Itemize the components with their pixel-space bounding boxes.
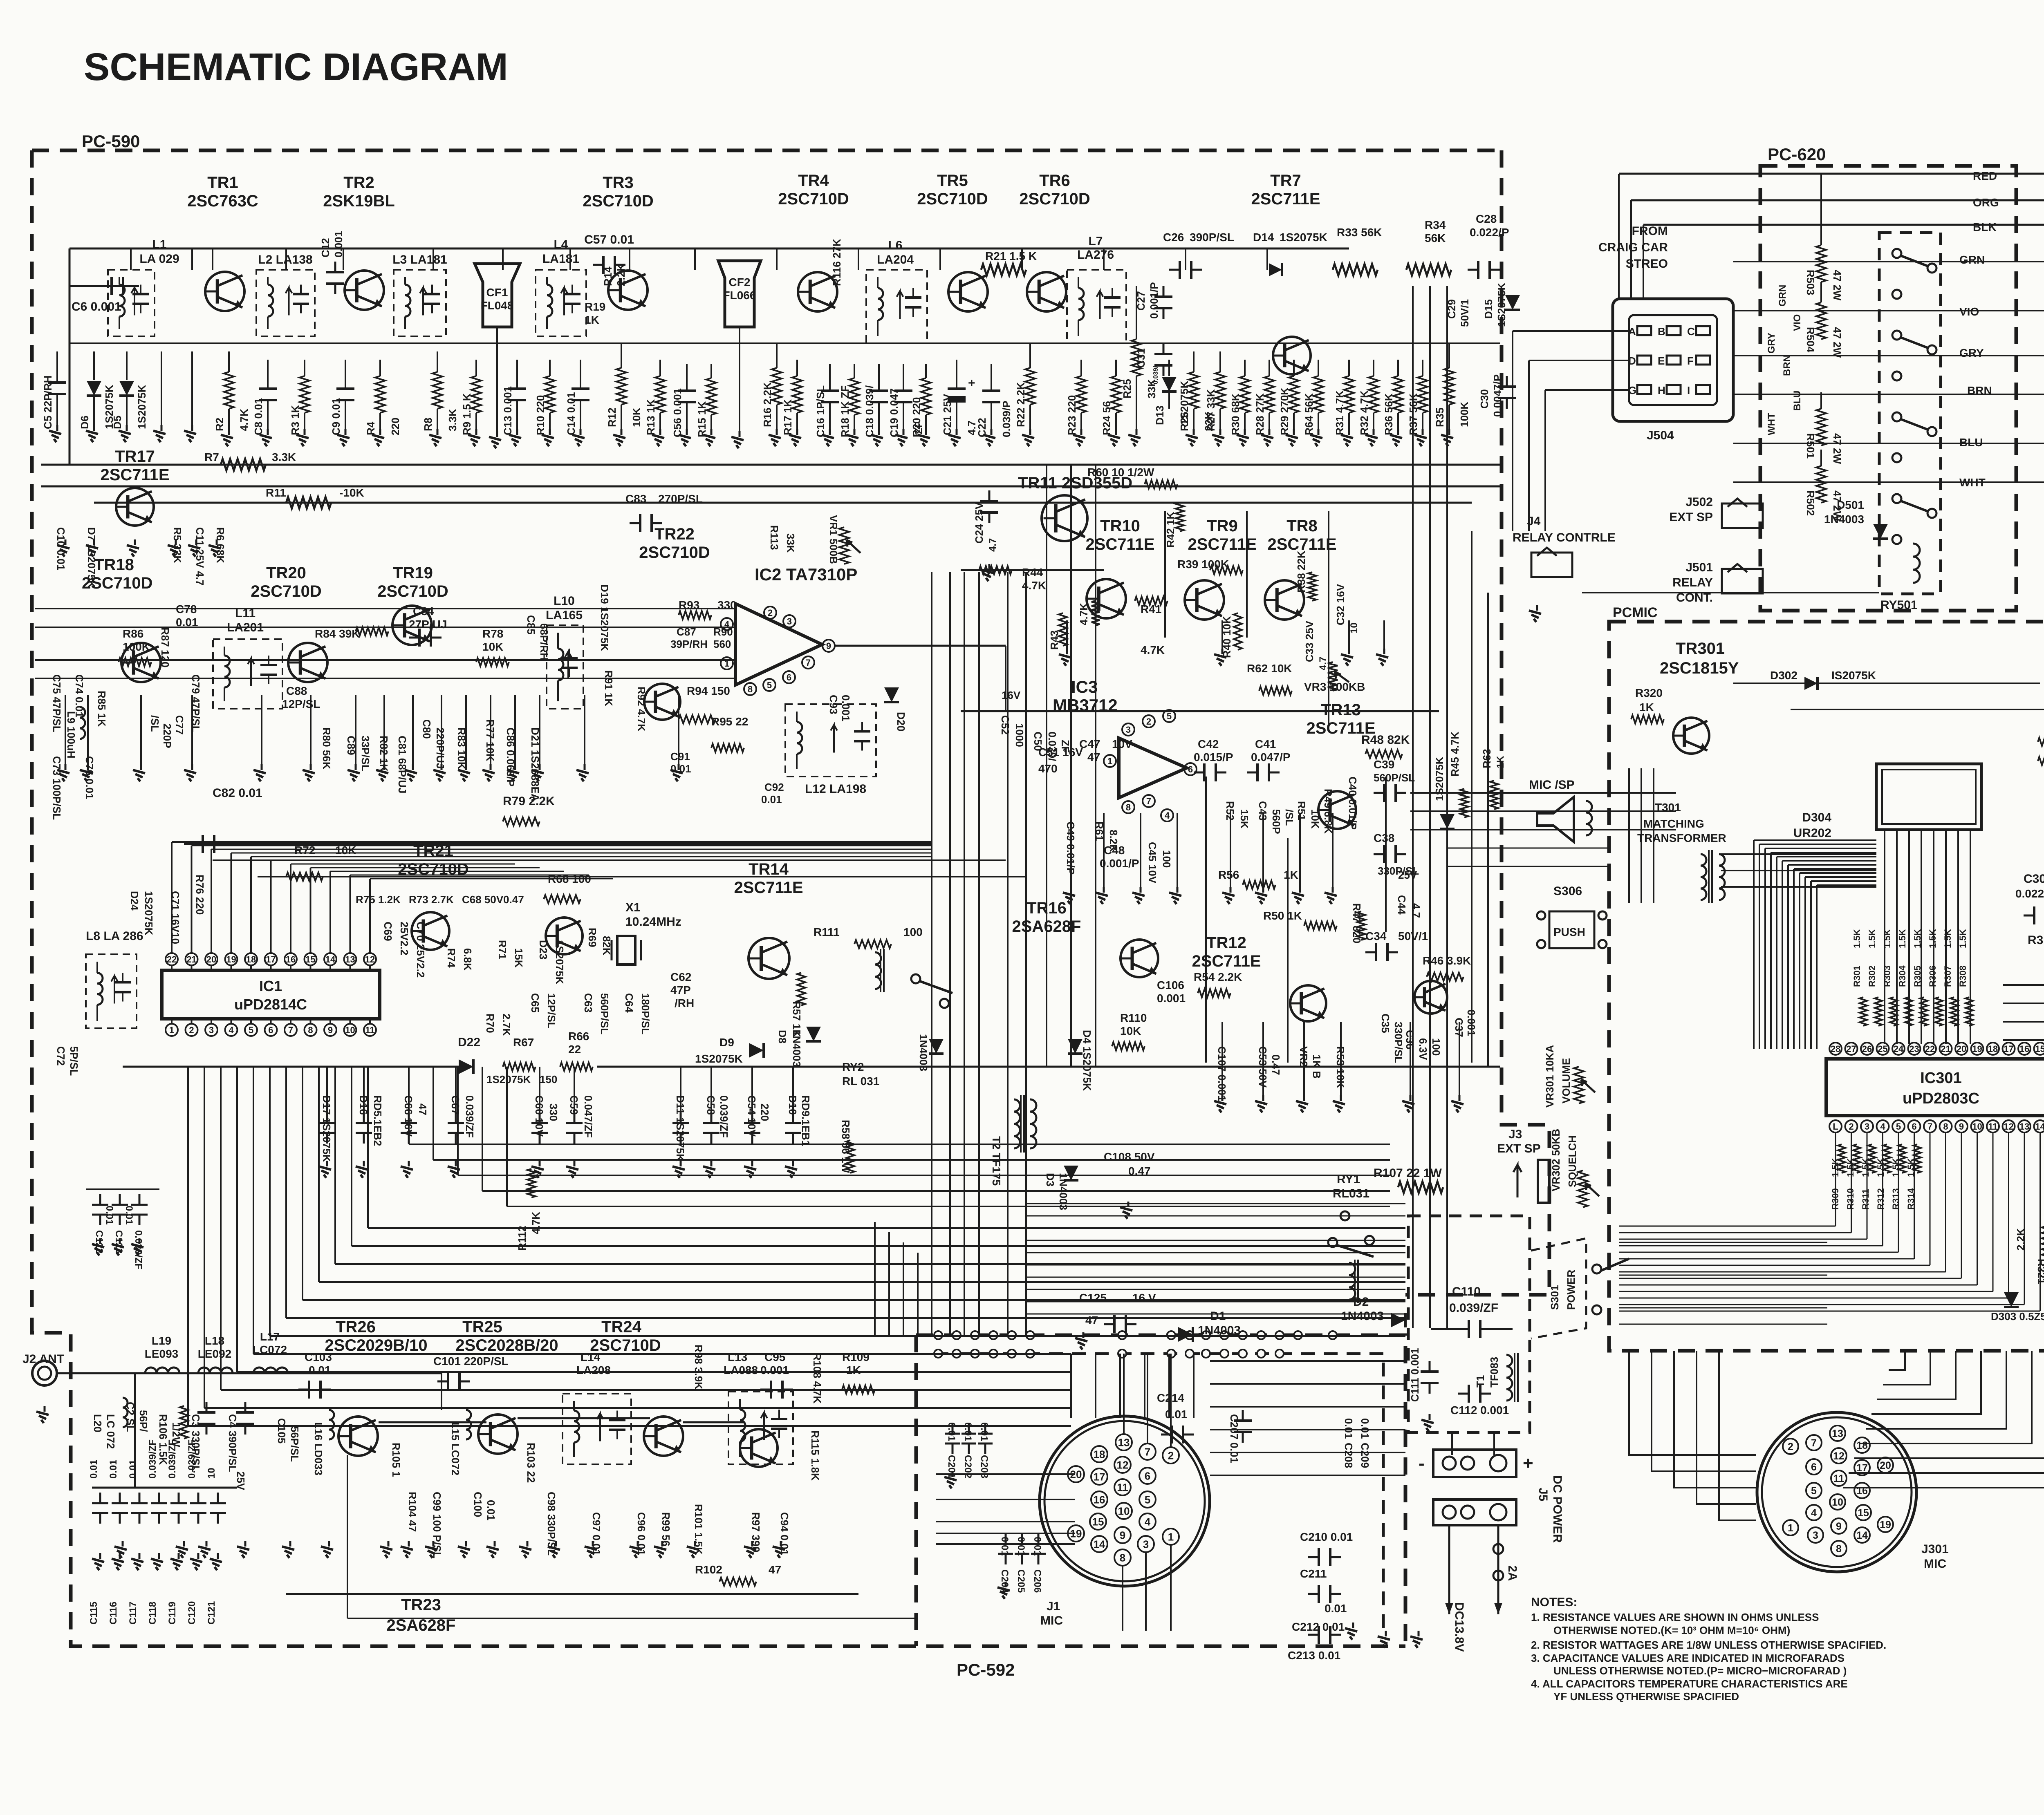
svg-text:C84: C84	[413, 605, 434, 618]
svg-text:RY501: RY501	[1880, 598, 1918, 612]
svg-text:IC1: IC1	[259, 978, 282, 994]
svg-text:12P/SL: 12P/SL	[545, 993, 558, 1029]
svg-text:TR26: TR26	[336, 1318, 376, 1336]
svg-text:17: 17	[266, 954, 276, 965]
svg-text:OTHERWISE NOTED.(K= 10³ OHM: OTHERWISE NOTED.(K= 10³ OHM M=10⁶ OHM)	[1553, 1624, 1790, 1636]
svg-text:R26: R26	[1178, 412, 1190, 431]
svg-text:CRAIG CAR: CRAIG CAR	[1598, 241, 1668, 254]
svg-text:X1: X1	[625, 901, 641, 914]
svg-text:9: 9	[1959, 1121, 1964, 1132]
svg-text:560: 560	[713, 638, 731, 650]
svg-text:1K: 1K	[846, 1364, 861, 1376]
svg-text:0.0047/P: 0.0047/P	[1491, 374, 1504, 417]
svg-text:6.8K: 6.8K	[462, 948, 474, 971]
svg-text:0.039/ZF: 0.039/ZF	[147, 1439, 158, 1479]
svg-text:15: 15	[1092, 1515, 1104, 1528]
svg-text:UR202: UR202	[1793, 826, 1831, 840]
svg-text:15: 15	[2035, 1044, 2044, 1054]
svg-text:YF UNLESS QTHERWISE SPACIFI: YF UNLESS QTHERWISE SPACIFIED	[1553, 1690, 1739, 1703]
svg-text:12: 12	[1833, 1450, 1845, 1462]
svg-text:R84 39K: R84 39K	[315, 627, 360, 640]
svg-text:12P/SL: 12P/SL	[282, 698, 320, 710]
svg-text:19: 19	[1880, 1519, 1891, 1531]
svg-text:R78: R78	[482, 627, 503, 640]
svg-text:1K B: 1K B	[1311, 1054, 1323, 1079]
svg-text:R56: R56	[1218, 868, 1239, 881]
svg-text:R19: R19	[585, 300, 605, 313]
svg-text:15: 15	[1858, 1507, 1869, 1519]
svg-text:0.01: 0.01	[485, 1500, 497, 1521]
svg-text:R85 1K: R85 1K	[96, 691, 108, 727]
svg-text:R45 4.7K: R45 4.7K	[1449, 732, 1461, 777]
svg-text:R315 1M: R315 1M	[2028, 933, 2044, 947]
svg-text:R69: R69	[586, 928, 598, 947]
svg-text:A: A	[1628, 325, 1636, 338]
svg-text:J5: J5	[1536, 1488, 1550, 1501]
svg-text:R25: R25	[1121, 379, 1133, 398]
svg-text:ORG: ORG	[1973, 196, 1999, 209]
svg-text:R503: R503	[1804, 270, 1817, 295]
svg-text:1S2075K: 1S2075K	[136, 385, 148, 429]
svg-text:4: 4	[1811, 1507, 1817, 1519]
svg-text:C209: C209	[1359, 1443, 1371, 1468]
svg-text:14: 14	[2035, 1121, 2044, 1132]
svg-text:D14: D14	[1253, 231, 1274, 244]
svg-text:56K: 56K	[1425, 232, 1446, 244]
svg-text:/SL: /SL	[1283, 809, 1295, 826]
svg-text:1N4003: 1N4003	[1824, 513, 1864, 526]
svg-text:TR2: TR2	[343, 174, 374, 192]
svg-text:18: 18	[1988, 1044, 1998, 1054]
svg-text:47 2W: 47 2W	[1831, 433, 1843, 464]
svg-text:C103: C103	[305, 1351, 332, 1363]
svg-text:J301: J301	[1921, 1542, 1949, 1556]
svg-text:L14: L14	[580, 1351, 601, 1363]
svg-text:27: 27	[1846, 1044, 1856, 1054]
svg-text:C108 50V: C108 50V	[1104, 1150, 1155, 1163]
svg-text:C47: C47	[1079, 738, 1100, 750]
svg-text:560P/SL: 560P/SL	[1374, 772, 1415, 784]
svg-text:PC-592: PC-592	[957, 1660, 1015, 1679]
svg-text:D8: D8	[776, 1030, 789, 1043]
svg-text:470: 470	[1038, 762, 1058, 775]
svg-text:TR17: TR17	[115, 448, 155, 465]
svg-text:1S2075K: 1S2075K	[554, 940, 566, 985]
svg-text:C71 16V10: C71 16V10	[169, 891, 182, 944]
svg-text:TR20: TR20	[266, 564, 306, 582]
svg-text:+: +	[968, 376, 975, 390]
svg-text:C16 1P/SL: C16 1P/SL	[814, 385, 827, 437]
svg-text:2SC2029B/10: 2SC2029B/10	[325, 1336, 427, 1354]
svg-text:C35: C35	[1379, 1014, 1392, 1033]
svg-text:1. RESISTANCE VALUES ARE S: 1. RESISTANCE VALUES ARE SHOWN IN OHMS U…	[1531, 1611, 1819, 1623]
svg-text:1S2075K: 1S2075K	[1433, 756, 1446, 801]
svg-text:0.015/P: 0.015/P	[1194, 751, 1233, 763]
svg-text:0.01: 0.01	[128, 1459, 139, 1479]
svg-text:68P/RH: 68P/RH	[538, 623, 550, 660]
svg-text:EXT SP: EXT SP	[1497, 1142, 1541, 1155]
svg-text:4.7K: 4.7K	[1022, 579, 1046, 592]
svg-text:PUSH: PUSH	[1553, 926, 1585, 938]
svg-text:C64: C64	[623, 993, 635, 1013]
svg-text:R72: R72	[294, 844, 315, 857]
svg-text:33K: 33K	[784, 533, 797, 553]
svg-text:C121: C121	[206, 1601, 217, 1625]
svg-text:R3 1K: R3 1K	[289, 405, 301, 435]
svg-text:6: 6	[787, 672, 791, 683]
svg-text:1S2075K: 1S2075K	[486, 1073, 531, 1085]
svg-text:2SC710D: 2SC710D	[82, 574, 152, 592]
svg-text:D6: D6	[78, 416, 91, 429]
svg-text:SCHEMATIC DIAGRAM: SCHEMATIC DIAGRAM	[84, 45, 508, 89]
svg-text:J1: J1	[1047, 1600, 1060, 1613]
svg-text:8: 8	[748, 684, 753, 694]
svg-text:R30 68K: R30 68K	[1229, 393, 1242, 435]
svg-text:R6 68K: R6 68K	[214, 527, 226, 563]
svg-text:15K: 15K	[1238, 809, 1251, 829]
svg-text:20: 20	[206, 954, 216, 965]
svg-text:R76 220: R76 220	[194, 875, 206, 915]
svg-text:11: 11	[1833, 1473, 1845, 1484]
svg-text:12: 12	[1117, 1459, 1129, 1471]
svg-text:2.7K: 2.7K	[500, 1014, 513, 1036]
svg-text:R302: R302	[1867, 965, 1877, 987]
svg-text:R36 56K: R36 56K	[1383, 393, 1395, 435]
svg-text:C214: C214	[1157, 1392, 1184, 1404]
svg-text:R108 4.7K: R108 4.7K	[811, 1353, 823, 1404]
svg-text:C63: C63	[582, 993, 594, 1013]
svg-text:5: 5	[1896, 1121, 1901, 1132]
svg-text:R113: R113	[768, 525, 780, 550]
svg-text:3: 3	[1143, 1538, 1149, 1550]
svg-text:L18: L18	[205, 1334, 224, 1347]
svg-text:D: D	[1628, 355, 1636, 367]
svg-text:D4 1S2075K: D4 1S2075K	[1081, 1030, 1093, 1091]
svg-text:C14 0.01: C14 0.01	[565, 392, 577, 435]
svg-text:R11: R11	[266, 486, 286, 499]
svg-text:R43: R43	[1048, 630, 1060, 650]
svg-text:13: 13	[345, 954, 355, 965]
svg-text:10K: 10K	[482, 640, 503, 653]
svg-text:10: 10	[1972, 1121, 1982, 1132]
svg-text:22: 22	[1925, 1044, 1935, 1054]
svg-text:GRY: GRY	[1959, 347, 1984, 359]
svg-text:10.24MHz: 10.24MHz	[625, 915, 681, 929]
svg-text:9: 9	[1836, 1521, 1842, 1532]
svg-text:1: 1	[1107, 756, 1112, 766]
svg-text:C75 47P/SL: C75 47P/SL	[51, 674, 63, 732]
svg-text:uPD2803C: uPD2803C	[1903, 1090, 1979, 1107]
svg-text:L12 LA198: L12 LA198	[805, 782, 866, 796]
svg-text:C82 0.01: C82 0.01	[213, 786, 262, 800]
svg-text:R20 220: R20 220	[910, 397, 923, 437]
svg-text:0.01: 0.01	[176, 616, 198, 629]
svg-text:18: 18	[246, 954, 256, 965]
svg-text:C100: C100	[472, 1492, 484, 1517]
svg-text:330: 330	[717, 599, 737, 611]
svg-text:C33 25V: C33 25V	[1303, 620, 1316, 662]
svg-text:220P/UJ: 220P/UJ	[434, 727, 446, 769]
svg-text:LA208: LA208	[576, 1364, 611, 1376]
svg-text:10K: 10K	[1120, 1025, 1141, 1037]
svg-text:1.5K: 1.5K	[1891, 1158, 1901, 1177]
svg-text:8: 8	[308, 1025, 313, 1035]
svg-text:R304: R304	[1897, 965, 1907, 987]
svg-text:C9 0.01: C9 0.01	[330, 398, 342, 435]
svg-text:R112: R112	[516, 1226, 528, 1251]
svg-text:8: 8	[1943, 1121, 1948, 1132]
svg-text:B: B	[1658, 325, 1665, 338]
svg-text:0.022/P: 0.022/P	[1470, 226, 1509, 239]
svg-text:3. CAPACITANCE VALUES ARE: 3. CAPACITANCE VALUES ARE INDICATED IN M…	[1531, 1652, 1845, 1664]
svg-text:R115 1.8K: R115 1.8K	[809, 1430, 821, 1481]
svg-text:220: 220	[759, 1103, 771, 1121]
svg-text:7: 7	[288, 1025, 293, 1035]
svg-text:RD5.1EB2: RD5.1EB2	[372, 1095, 384, 1146]
svg-text:LC072: LC072	[253, 1343, 287, 1356]
svg-text:G: G	[1628, 384, 1636, 396]
svg-text:C52: C52	[999, 715, 1011, 735]
svg-text:9: 9	[826, 641, 831, 651]
svg-text:3: 3	[209, 1025, 214, 1035]
svg-text:LE093: LE093	[145, 1347, 179, 1360]
svg-text:R110: R110	[1120, 1012, 1147, 1024]
svg-text:0.001: 0.001	[840, 695, 852, 721]
svg-text:9: 9	[328, 1025, 333, 1035]
svg-text:2: 2	[1168, 1449, 1174, 1461]
svg-text:25V2.2: 25V2.2	[398, 922, 410, 955]
svg-text:0.039/ZF: 0.039/ZF	[1449, 1301, 1498, 1315]
svg-text:100: 100	[1430, 1038, 1442, 1056]
svg-text:MIC /SP: MIC /SP	[1529, 778, 1575, 792]
svg-text:R67: R67	[513, 1036, 534, 1049]
svg-text:7: 7	[1811, 1437, 1817, 1449]
svg-text:VR1 500B: VR1 500B	[827, 515, 840, 564]
svg-text:1K: 1K	[1495, 756, 1506, 768]
svg-text:20: 20	[1880, 1460, 1891, 1471]
svg-text:TRANSFORMER: TRANSFORMER	[1637, 832, 1726, 844]
svg-text:C24 25V: C24 25V	[973, 502, 985, 544]
svg-text:6: 6	[1188, 764, 1193, 774]
svg-text:16: 16	[286, 954, 296, 965]
svg-text:TR14: TR14	[749, 860, 789, 878]
svg-text:R51: R51	[1295, 801, 1308, 821]
svg-text:22: 22	[568, 1043, 581, 1056]
svg-text:RELAY: RELAY	[1672, 576, 1713, 589]
svg-text:22: 22	[167, 954, 177, 965]
svg-text:S301: S301	[1549, 1285, 1561, 1310]
svg-text:C203: C203	[979, 1455, 990, 1478]
svg-text:BRN: BRN	[1782, 355, 1793, 376]
svg-text:47 2W: 47 2W	[1831, 490, 1843, 521]
svg-text:PC-620: PC-620	[1768, 145, 1826, 164]
svg-text:R66: R66	[568, 1030, 589, 1043]
svg-text:D24: D24	[128, 891, 141, 911]
svg-text:TR16: TR16	[1026, 899, 1067, 917]
svg-text:TR8: TR8	[1286, 517, 1318, 535]
svg-text:16: 16	[1094, 1493, 1105, 1506]
svg-text:14: 14	[1856, 1530, 1868, 1541]
svg-text:0.047/ZF: 0.047/ZF	[582, 1095, 594, 1138]
svg-text:L6: L6	[888, 239, 902, 252]
svg-text:C88: C88	[286, 685, 307, 697]
svg-text:15: 15	[305, 954, 315, 965]
svg-text:10: 10	[1118, 1505, 1130, 1517]
svg-text:1: 1	[1788, 1522, 1793, 1534]
svg-text:PC-590: PC-590	[82, 132, 140, 151]
svg-text:8: 8	[1120, 1551, 1125, 1564]
svg-text:R8: R8	[422, 418, 434, 431]
svg-text:TR9: TR9	[1207, 517, 1238, 535]
svg-text:3.3K: 3.3K	[272, 451, 296, 463]
svg-text:4.7K: 4.7K	[1078, 603, 1090, 625]
svg-text:C118: C118	[147, 1602, 158, 1625]
svg-text:SQUELCH: SQUELCH	[1566, 1135, 1578, 1187]
svg-text:28: 28	[1831, 1044, 1840, 1054]
svg-text:4.7K: 4.7K	[1141, 644, 1165, 656]
svg-text:L8 LA 286: L8 LA 286	[86, 929, 143, 943]
svg-text:1.5K: 1.5K	[1882, 929, 1892, 948]
svg-text:2SC710D: 2SC710D	[778, 190, 849, 208]
svg-text:4: 4	[1145, 1515, 1151, 1528]
svg-text:STREO: STREO	[1626, 257, 1668, 271]
svg-text:14: 14	[1094, 1538, 1105, 1550]
svg-text:R12: R12	[606, 407, 618, 427]
svg-text:C85: C85	[525, 615, 537, 635]
svg-text:C42: C42	[1198, 738, 1219, 750]
svg-text:C8 0.01: C8 0.01	[252, 398, 264, 435]
svg-text:R60 10 1/2W: R60 10 1/2W	[1087, 466, 1154, 479]
svg-text:1N4003: 1N4003	[1341, 1309, 1384, 1323]
svg-text:L: L	[1833, 1121, 1838, 1132]
svg-text:1.5K: 1.5K	[1927, 929, 1938, 948]
svg-text:330P/SL: 330P/SL	[1392, 1022, 1405, 1063]
svg-text:R320: R320	[1635, 687, 1663, 699]
svg-text:C301: C301	[2024, 872, 2044, 886]
svg-text:R311: R311	[1860, 1189, 1871, 1210]
svg-text:560P: 560P	[1270, 809, 1282, 834]
svg-text:C45 10V: C45 10V	[1146, 842, 1159, 884]
svg-text:2: 2	[768, 608, 773, 618]
svg-text:23: 23	[1909, 1044, 1919, 1054]
svg-text:220P: 220P	[161, 723, 173, 748]
svg-text:C13 0.001: C13 0.001	[502, 386, 514, 435]
svg-text:C72: C72	[55, 1046, 67, 1066]
svg-text:3: 3	[1813, 1530, 1818, 1541]
svg-text:2SC711E: 2SC711E	[734, 879, 803, 897]
svg-text:TR3: TR3	[603, 174, 634, 192]
svg-text:LA181: LA181	[542, 252, 579, 266]
svg-text:TR25: TR25	[462, 1318, 502, 1336]
svg-text:C44: C44	[1396, 895, 1408, 915]
svg-text:C119: C119	[167, 1602, 178, 1625]
svg-text:R502: R502	[1804, 490, 1817, 516]
svg-text:R91 1K: R91 1K	[603, 670, 615, 706]
svg-text:2SC763C: 2SC763C	[187, 192, 258, 210]
svg-text:J502: J502	[1685, 495, 1713, 509]
svg-text:R16 2.2K: R16 2.2K	[761, 382, 773, 427]
svg-text:R105 1: R105 1	[390, 1443, 402, 1477]
svg-text:EXT SP: EXT SP	[1669, 510, 1713, 524]
svg-text:47P: 47P	[670, 984, 691, 996]
svg-text:1S2075K: 1S2075K	[695, 1052, 743, 1065]
svg-text:47: 47	[769, 1563, 781, 1576]
svg-text:1N4003: 1N4003	[917, 1034, 930, 1071]
svg-text:1S2075K: 1S2075K	[143, 891, 155, 935]
svg-text:2: 2	[189, 1025, 194, 1035]
svg-text:0.047/P: 0.047/P	[1251, 751, 1291, 763]
svg-text:C202: C202	[962, 1455, 973, 1478]
svg-text:R86: R86	[123, 627, 143, 640]
svg-text:R15 1K: R15 1K	[696, 401, 708, 437]
svg-text:17: 17	[1094, 1470, 1105, 1483]
svg-text:10K: 10K	[335, 844, 356, 857]
svg-text:F: F	[1687, 355, 1694, 367]
svg-text:R62 10K: R62 10K	[1247, 662, 1292, 675]
svg-text:IS2075K: IS2075K	[1831, 669, 1876, 682]
svg-text:56P/: 56P/	[137, 1410, 150, 1432]
svg-text:2. RESISTOR WATTAGES ARE 1: 2. RESISTOR WATTAGES ARE 1/8W UNLESS OTH…	[1531, 1639, 1886, 1651]
svg-text:RL031: RL031	[1333, 1187, 1369, 1200]
svg-text:GRN: GRN	[1959, 253, 1985, 266]
svg-text:2: 2	[1788, 1441, 1793, 1452]
svg-text:56P/SL: 56P/SL	[289, 1426, 301, 1462]
svg-text:WHT: WHT	[1766, 413, 1777, 435]
svg-text:TR12: TR12	[1206, 934, 1246, 952]
svg-text:L13: L13	[728, 1351, 747, 1363]
svg-text:25V: 25V	[235, 1471, 247, 1490]
svg-text:R17 1K: R17 1K	[782, 399, 794, 435]
svg-text:TR18: TR18	[94, 556, 134, 574]
svg-text:DC13.8V: DC13.8V	[1452, 1602, 1466, 1652]
svg-text:1.5K: 1.5K	[1958, 929, 1968, 948]
svg-text:D304: D304	[1802, 811, 1831, 824]
svg-text:47 2W: 47 2W	[1831, 270, 1843, 301]
svg-text:18: 18	[1856, 1440, 1868, 1451]
svg-text:2SC1815Y: 2SC1815Y	[1660, 659, 1739, 677]
svg-text:11: 11	[365, 1025, 374, 1035]
svg-text:VR3 100KB: VR3 100KB	[1304, 680, 1365, 693]
svg-text:BLK: BLK	[1973, 221, 1997, 233]
svg-text:C76 0.01: C76 0.01	[83, 756, 96, 799]
svg-text:220: 220	[389, 418, 401, 435]
svg-text:R5 33K: R5 33K	[171, 527, 184, 563]
svg-text:R308: R308	[1958, 965, 1968, 987]
svg-text:5: 5	[1145, 1493, 1150, 1506]
svg-text:4. ALL CAPACITORS TEMPERATU: 4. ALL CAPACITORS TEMPERATURE CHARACTERI…	[1531, 1678, 1848, 1690]
svg-text:0.022/FILM: 0.022/FILM	[2015, 887, 2044, 900]
svg-text:TR1: TR1	[207, 174, 238, 192]
svg-text:C211: C211	[1300, 1567, 1327, 1580]
svg-text:150: 150	[540, 1073, 557, 1085]
svg-text:1S2075K: 1S2075K	[1280, 231, 1327, 244]
svg-text:47: 47	[417, 1103, 429, 1115]
svg-text:10: 10	[345, 1025, 355, 1035]
svg-text:MIC: MIC	[1924, 1557, 1946, 1571]
svg-text:2SC710D: 2SC710D	[377, 582, 448, 600]
svg-text:RD9.1EB1: RD9.1EB1	[800, 1095, 812, 1146]
svg-text:R29 270K: R29 270K	[1278, 387, 1291, 435]
svg-text:0.01: 0.01	[108, 1459, 119, 1479]
svg-text:13: 13	[1118, 1436, 1130, 1448]
svg-text:2SC710D: 2SC710D	[917, 190, 988, 208]
svg-text:100K: 100K	[1458, 402, 1470, 427]
svg-text:17: 17	[1856, 1462, 1868, 1474]
svg-text:R31 4.7K: R31 4.7K	[1334, 390, 1346, 435]
svg-text:C69: C69	[382, 922, 394, 941]
svg-text:R70: R70	[484, 1014, 496, 1033]
svg-text:NOTES:: NOTES:	[1531, 1596, 1577, 1609]
